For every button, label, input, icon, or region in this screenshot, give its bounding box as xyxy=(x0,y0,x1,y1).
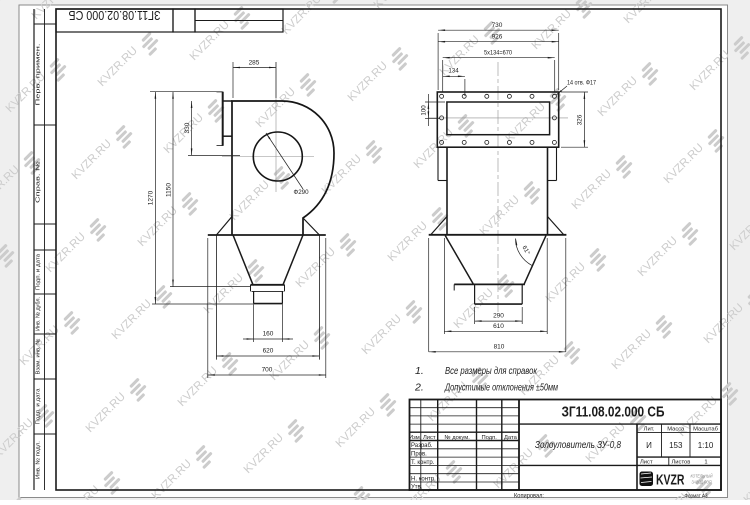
svg-text:Все размеры для справок: Все размеры для справок xyxy=(445,366,538,377)
svg-text:5х134=670: 5х134=670 xyxy=(484,50,513,57)
svg-text:1: 1 xyxy=(704,459,707,465)
svg-text:KVZR: KVZR xyxy=(656,473,685,489)
svg-text:Копировал:: Копировал: xyxy=(514,493,544,500)
svg-text:153: 153 xyxy=(669,441,683,450)
svg-text:Формат А3: Формат А3 xyxy=(685,494,708,500)
svg-text:Подп. и дата: Подп. и дата xyxy=(36,253,42,290)
svg-text:Изм.: Изм. xyxy=(409,435,422,441)
svg-text:Пров.: Пров. xyxy=(411,452,427,458)
svg-text:700: 700 xyxy=(262,367,273,374)
svg-text:134: 134 xyxy=(448,68,459,75)
svg-text:ЗАВОД РЭП: ЗАВОД РЭП xyxy=(692,480,713,485)
svg-text:Масштаб: Масштаб xyxy=(693,426,718,432)
svg-text:1.: 1. xyxy=(415,365,424,377)
svg-text:620: 620 xyxy=(263,348,274,355)
svg-text:Дата: Дата xyxy=(504,435,518,441)
svg-text:Масса: Масса xyxy=(667,426,685,432)
svg-text:Лист: Лист xyxy=(423,435,436,441)
svg-text:КОТЕЛЬНЫЙ: КОТЕЛЬНЫЙ xyxy=(691,472,714,479)
svg-text:Листов: Листов xyxy=(672,459,691,465)
svg-text:326: 326 xyxy=(576,114,583,125)
svg-text:330: 330 xyxy=(184,122,191,133)
svg-text:Подп.: Подп. xyxy=(481,435,497,441)
svg-text:160: 160 xyxy=(263,331,274,338)
svg-text:2.: 2. xyxy=(414,382,424,394)
svg-text:14 отв. Ф17: 14 отв. Ф17 xyxy=(567,80,596,87)
svg-text:730: 730 xyxy=(492,22,503,29)
svg-text:№ докум.: № докум. xyxy=(444,435,470,441)
svg-text:926: 926 xyxy=(492,34,503,41)
svg-text:И: И xyxy=(646,441,652,450)
svg-text:610: 610 xyxy=(493,323,504,330)
svg-text:1270: 1270 xyxy=(148,190,155,205)
svg-text:285: 285 xyxy=(249,60,260,67)
svg-text:290: 290 xyxy=(493,313,504,320)
svg-text:Н. контр.: Н. контр. xyxy=(411,476,436,482)
svg-text:Т. контр.: Т. контр. xyxy=(411,460,435,466)
svg-text:1150: 1150 xyxy=(165,183,172,197)
svg-text:Инв. № подл.: Инв. № подл. xyxy=(36,441,42,479)
svg-text:Лит.: Лит. xyxy=(644,426,655,432)
svg-text:Инв. № дубл.: Инв. № дубл. xyxy=(36,297,42,331)
svg-text:Разраб.: Разраб. xyxy=(411,443,433,449)
svg-text:ЗГ11.08.02.000 СБ: ЗГ11.08.02.000 СБ xyxy=(562,405,665,421)
svg-text:Допустимые отклонения ±50мм: Допустимые отклонения ±50мм xyxy=(444,383,558,394)
svg-text:810: 810 xyxy=(494,343,505,350)
svg-text:Утв.: Утв. xyxy=(411,485,423,491)
svg-text:Взам. инв. №: Взам. инв. № xyxy=(36,339,42,375)
svg-text:Перв. примен.: Перв. примен. xyxy=(36,43,42,106)
svg-text:1:10: 1:10 xyxy=(698,441,714,450)
svg-text:Подп. и дата: Подп. и дата xyxy=(36,388,42,425)
svg-text:100: 100 xyxy=(421,105,428,116)
svg-text:Ф290: Ф290 xyxy=(293,189,309,196)
svg-text:ЗГ11.08.02.000 СБ: ЗГ11.08.02.000 СБ xyxy=(69,8,161,22)
svg-text:Справ. №: Справ. № xyxy=(36,161,42,203)
svg-text:Лист: Лист xyxy=(640,459,653,465)
svg-text:Золоуловитель ЗУ-0,8: Золоуловитель ЗУ-0,8 xyxy=(535,439,621,451)
